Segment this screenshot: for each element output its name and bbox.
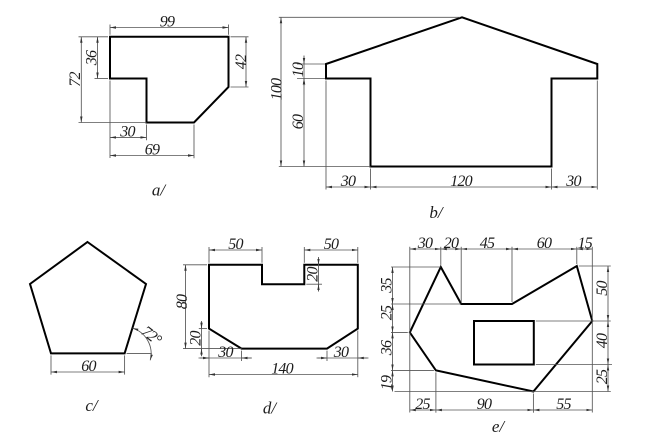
svg-text:25: 25	[415, 396, 430, 413]
svg-text:90: 90	[477, 396, 492, 413]
svg-text:80: 80	[174, 294, 191, 309]
svg-text:30: 30	[565, 173, 581, 190]
svg-text:72: 72	[67, 72, 84, 87]
svg-text:40: 40	[594, 333, 611, 348]
svg-text:30: 30	[217, 344, 233, 361]
svg-text:100: 100	[269, 78, 286, 100]
svg-text:99: 99	[160, 14, 175, 31]
svg-text:35: 35	[379, 278, 396, 294]
svg-text:19: 19	[379, 375, 396, 390]
svg-text:45: 45	[480, 235, 495, 252]
svg-text:10: 10	[290, 62, 307, 77]
svg-text:b/: b/	[429, 203, 445, 222]
svg-text:120: 120	[450, 173, 472, 190]
svg-text:30: 30	[333, 344, 349, 361]
svg-text:15: 15	[578, 235, 593, 252]
svg-text:55: 55	[556, 396, 571, 413]
svg-text:20: 20	[305, 267, 322, 282]
svg-text:e/: e/	[492, 417, 507, 436]
svg-text:60: 60	[290, 114, 307, 129]
svg-text:69: 69	[145, 142, 160, 159]
svg-text:d/: d/	[263, 399, 279, 418]
svg-text:140: 140	[271, 361, 293, 378]
svg-text:30: 30	[417, 235, 433, 252]
svg-text:42: 42	[233, 54, 250, 69]
svg-text:60: 60	[81, 358, 96, 375]
svg-text:50: 50	[228, 236, 243, 253]
svg-text:36: 36	[379, 340, 396, 356]
svg-text:36: 36	[84, 50, 101, 66]
svg-text:50: 50	[324, 236, 339, 253]
svg-text:60: 60	[537, 235, 552, 252]
svg-text:30: 30	[340, 173, 356, 190]
svg-text:25: 25	[379, 305, 396, 320]
svg-text:c/: c/	[85, 396, 100, 415]
svg-text:20: 20	[444, 235, 459, 252]
svg-text:25: 25	[594, 369, 611, 384]
svg-text:a/: a/	[152, 181, 168, 200]
svg-text:30: 30	[119, 123, 135, 140]
svg-text:72°: 72°	[138, 323, 165, 350]
svg-text:20: 20	[188, 331, 205, 346]
svg-text:50: 50	[594, 281, 611, 296]
